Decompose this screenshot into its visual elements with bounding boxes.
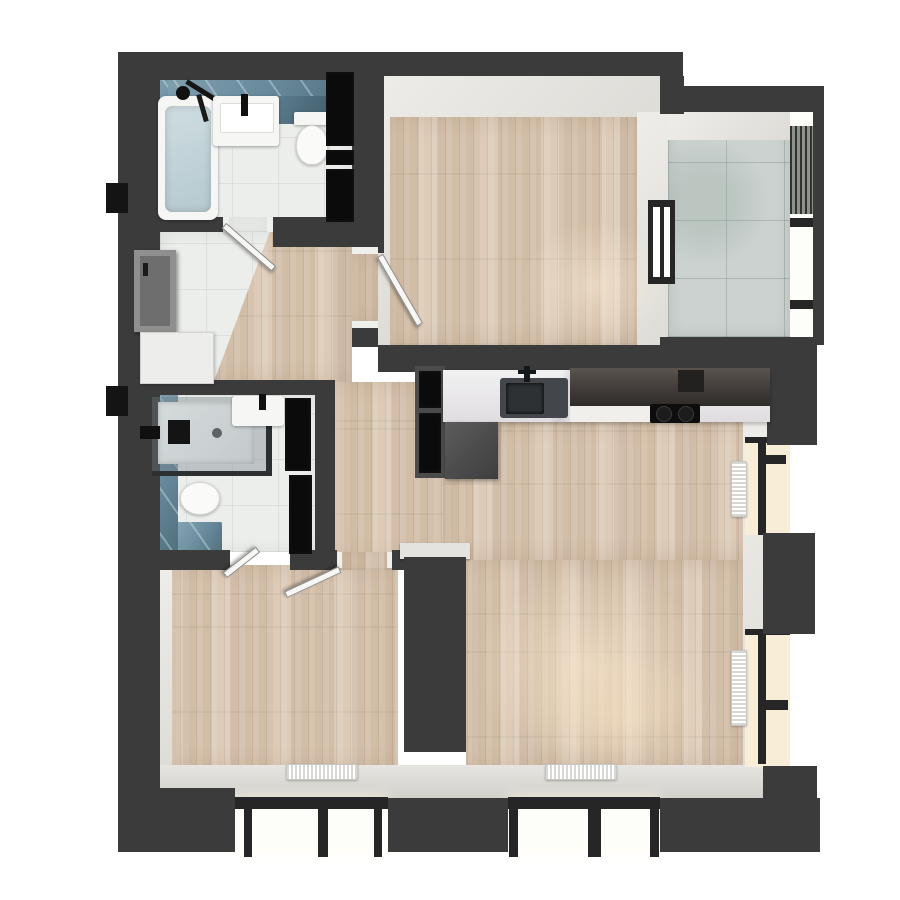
wall-loggia-right xyxy=(813,112,824,345)
wall-loggia-top xyxy=(660,86,824,112)
radiator-bedroom-bottom xyxy=(286,764,358,780)
kitchen-upper-cabinets xyxy=(570,368,770,406)
wall-bottom-chunk-right xyxy=(660,798,820,852)
window-bay-living-mullion-3 xyxy=(650,797,659,857)
ensuite-blue-wall-bottom xyxy=(178,522,222,552)
cooktop-burner-1 xyxy=(656,406,672,422)
window-bay-bedroom-mullion-1 xyxy=(244,797,252,857)
loggia-glazing-divider-1 xyxy=(790,218,814,227)
room-living-floor xyxy=(466,560,743,768)
wall-left-recess-1 xyxy=(106,183,128,213)
loggia-window-glass-2 xyxy=(664,207,670,277)
door-jamb-bathroom-main-b xyxy=(267,217,273,232)
wall-ensuite-right xyxy=(315,380,335,570)
shower-drain-icon xyxy=(212,428,222,438)
loggia-glazing-divider-2 xyxy=(790,300,814,309)
bedroom-bottom-door-threshold xyxy=(337,552,392,570)
window-bay-bedroom-frame xyxy=(232,797,388,809)
wall-outer-top-right xyxy=(378,52,683,76)
wall-right-pillar xyxy=(763,533,815,634)
door-jamb-bedroom-bottom-right xyxy=(387,552,392,568)
wall-bedroom-bottom-top-a xyxy=(118,550,230,570)
wall-right-chunk-top xyxy=(767,337,817,445)
radiator-living-side-2 xyxy=(731,650,747,726)
door-jamb-bedroom-top-b xyxy=(352,321,378,328)
wall-bottom-chunk-mid xyxy=(388,798,508,852)
window-sill-band-bottom xyxy=(160,765,790,801)
bedroom-bottom-wall-band-left xyxy=(160,565,172,768)
window-bay-bedroom-mullion-2 xyxy=(318,797,328,857)
toilet-ensuite-bowl xyxy=(180,482,220,515)
faucet-main-icon xyxy=(241,94,248,116)
kitchen-tall-cabinet-niche-2 xyxy=(419,413,441,473)
floor-plan xyxy=(0,0,900,900)
shower-head-icon xyxy=(140,426,160,439)
loggia-wall-band-top xyxy=(668,112,790,140)
shoe-cabinet xyxy=(140,332,214,384)
storage-niche-ensuite-2 xyxy=(289,475,312,554)
kitchen-counter-edge xyxy=(570,406,650,422)
faucet-ensuite-icon xyxy=(259,394,266,410)
loggia-window-glass-1 xyxy=(653,207,660,277)
entrance-door-handle-icon xyxy=(143,263,148,276)
wall-left-recess-2 xyxy=(106,386,128,416)
kitchen-hood-notch xyxy=(678,370,704,392)
kitchen-faucet-bar-icon xyxy=(518,370,536,374)
door-jamb-bedroom-top-a xyxy=(352,247,378,254)
loggia-louver-panel xyxy=(790,126,814,214)
side-window-2-bracket xyxy=(760,700,788,710)
storage-niche-ensuite-1 xyxy=(285,398,311,471)
bedroom-top-door-threshold xyxy=(352,253,378,323)
toilet-main-tank xyxy=(294,112,328,125)
toilet-main-bowl xyxy=(296,125,328,165)
kitchen-tall-cabinet-niche-1 xyxy=(419,371,441,408)
room-loggia-floor xyxy=(668,112,790,337)
side-window-2-mullion xyxy=(758,634,766,764)
storage-column-main-2 xyxy=(326,150,354,165)
shower-column-icon xyxy=(176,86,190,100)
window-bay-living-mullion-2 xyxy=(588,797,601,857)
window-bay-living-mullion-1 xyxy=(509,797,518,857)
vanity-sink-ensuite xyxy=(232,396,284,426)
shower-mixer-icon xyxy=(168,420,190,444)
cooktop-burner-2 xyxy=(678,406,694,422)
radiator-living-bottom xyxy=(545,764,617,780)
kitchen-faucet-icon xyxy=(524,366,530,382)
kitchen-sink-bowl xyxy=(506,383,544,414)
wall-bedroom-living-divider xyxy=(404,557,466,752)
wall-mid-column xyxy=(352,52,384,253)
window-bay-living-frame xyxy=(508,797,660,809)
bedroom-top-wall-band-top xyxy=(362,76,662,117)
kitchen-base-cabinet xyxy=(445,422,498,479)
storage-column-main-3 xyxy=(326,169,354,222)
radiator-living-side-1 xyxy=(731,461,747,517)
side-window-1-bracket xyxy=(760,455,786,464)
room-bedroom-top-floor xyxy=(390,117,637,345)
window-bay-bedroom-mullion-3 xyxy=(374,797,382,857)
wall-bottom-chunk-left xyxy=(118,788,235,852)
storage-column-main-1 xyxy=(326,72,354,146)
